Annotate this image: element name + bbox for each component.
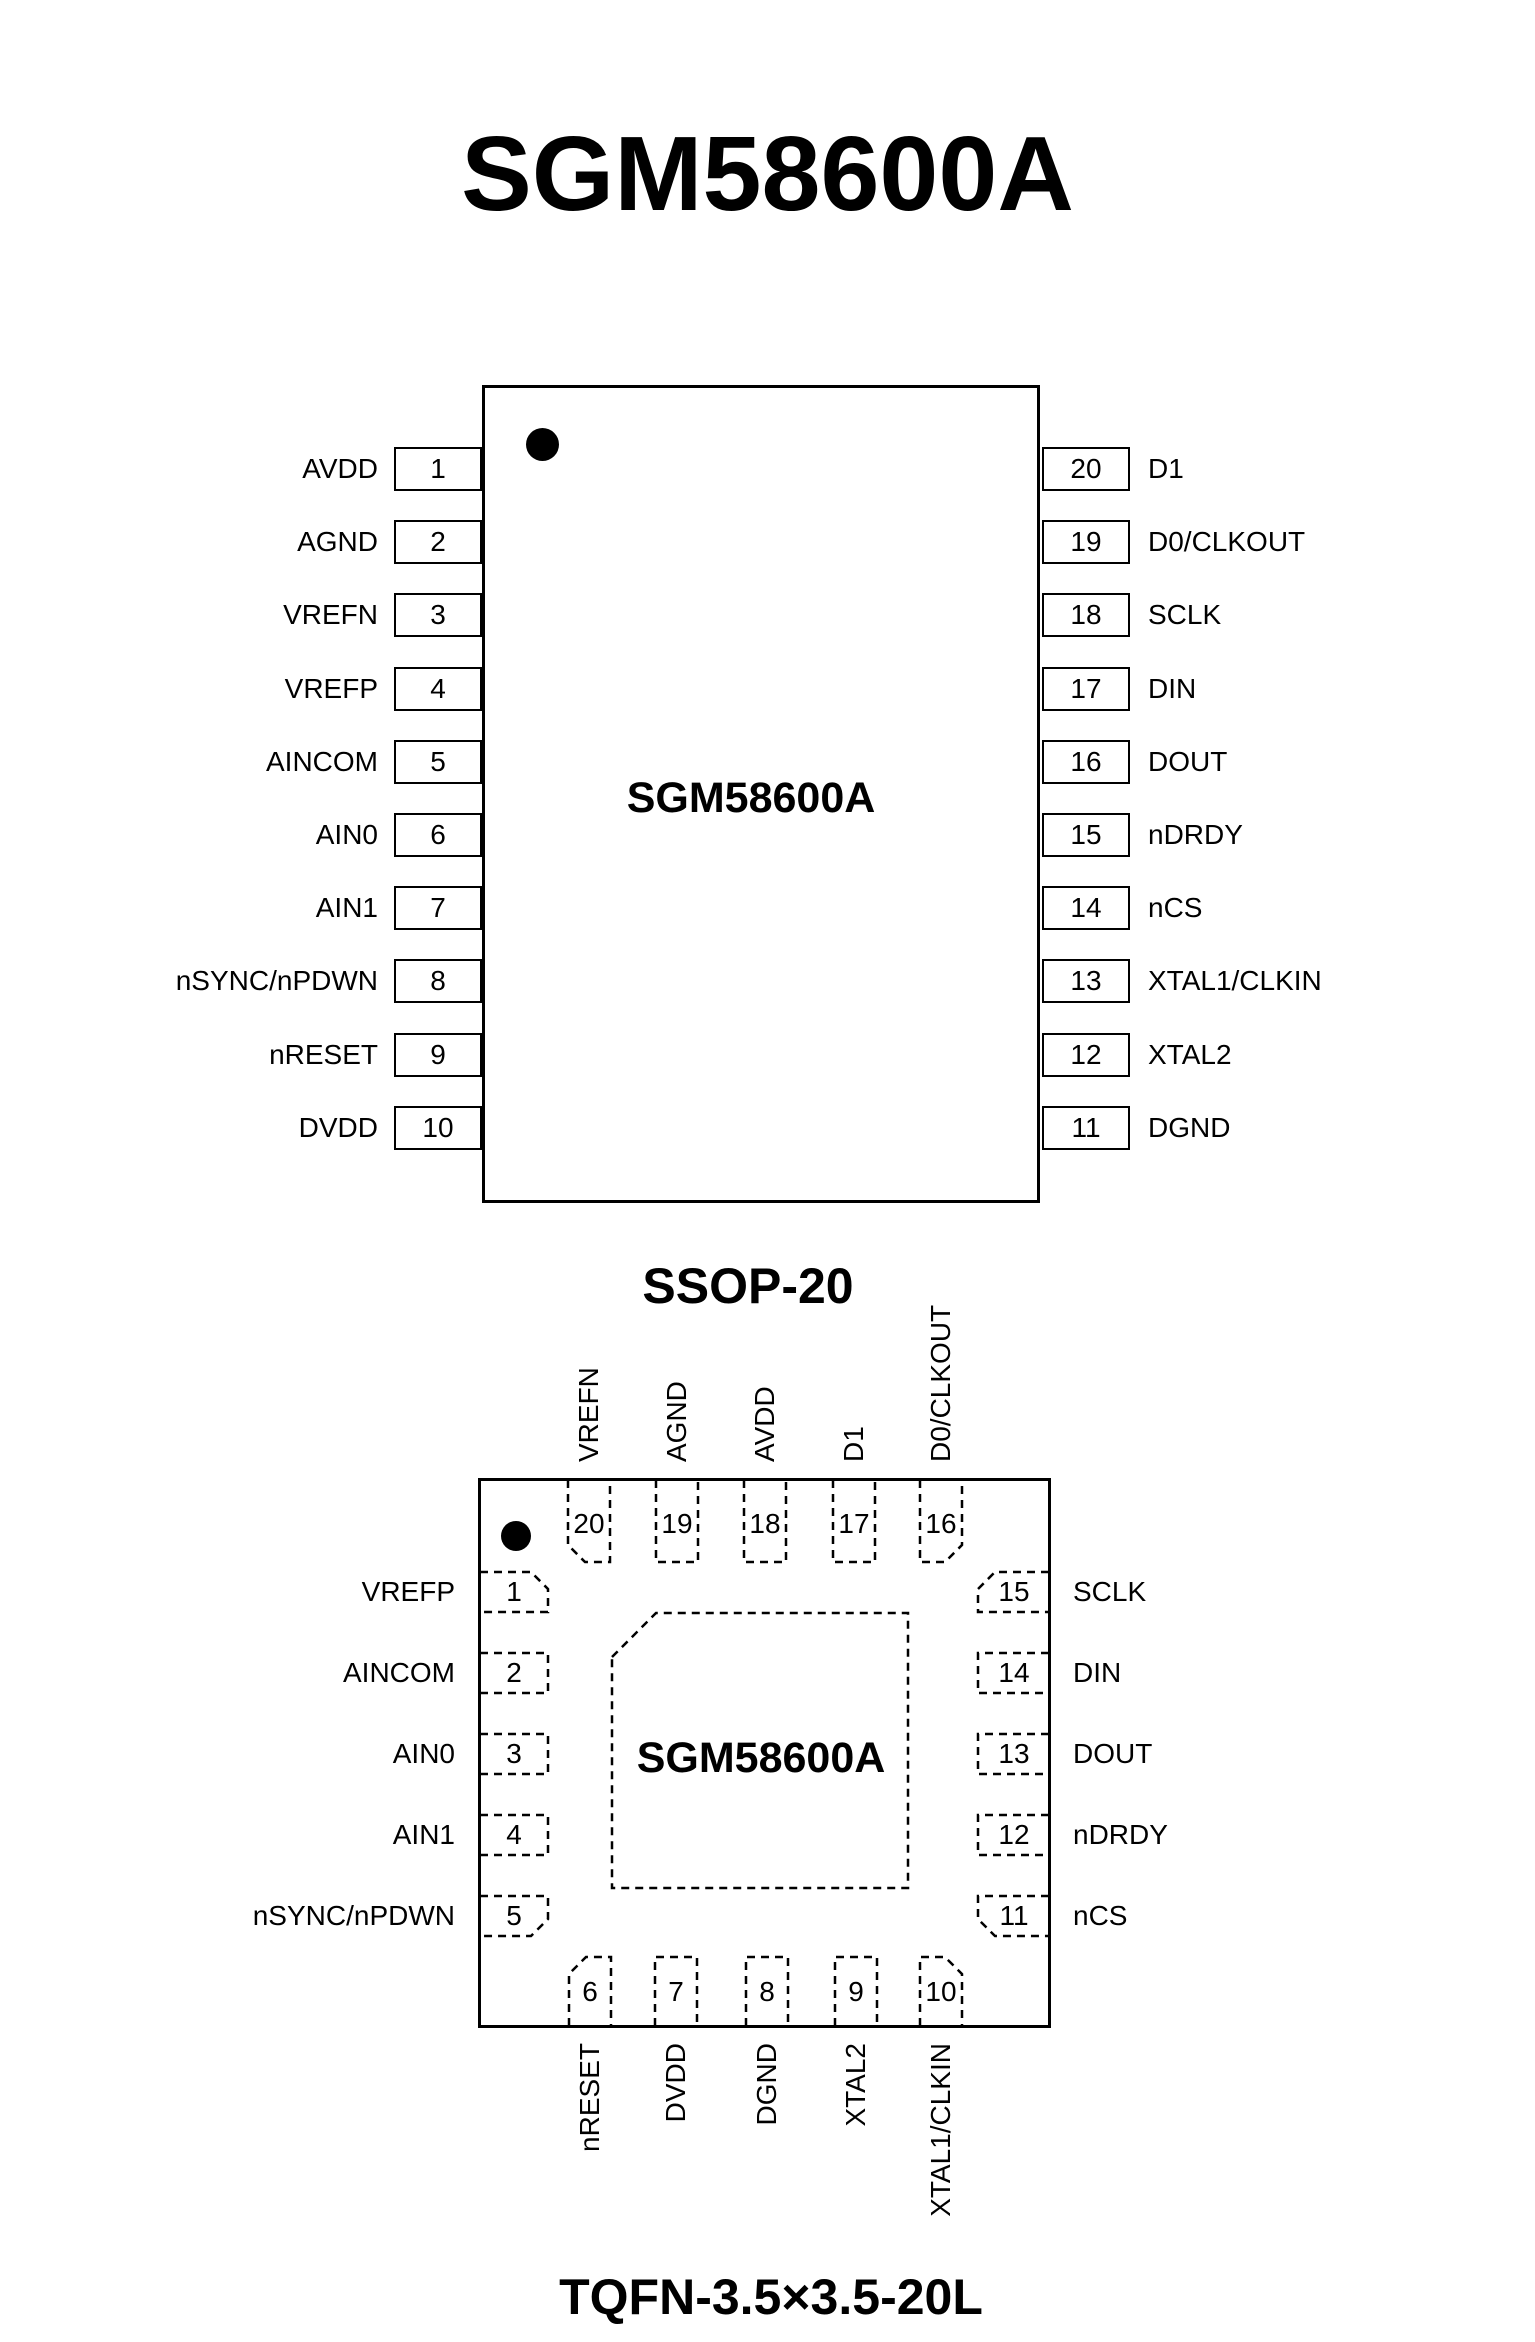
ssop-left-pin-label: DVDD [299,1112,378,1144]
tqfn-top-pin-label: AGND [661,1381,693,1462]
tqfn-right-pin-number: 15 [984,1576,1044,1608]
ssop-left-pin-label: VREFN [283,599,378,631]
ssop-right-pin-box: 19 [1042,520,1130,564]
ssop-left-pin-box: 3 [394,593,482,637]
tqfn-right-pin-number: 12 [984,1819,1044,1851]
tqfn-left-pin-label: AIN0 [393,1738,455,1770]
ssop-left-pin-label: AGND [297,526,378,558]
tqfn-bottom-pin-label: XTAL1/CLKIN [925,2043,957,2217]
ssop-left-pin-label: AIN0 [316,819,378,851]
tqfn-right-pin-label: DIN [1073,1657,1121,1689]
tqfn-right-pin-number: 14 [984,1657,1044,1689]
tqfn-pin1-dot-icon [501,1521,531,1551]
ssop-left-pin-box: 7 [394,886,482,930]
tqfn-left-pin-number: 3 [484,1738,544,1770]
tqfn-bottom-pin-label: DGND [751,2043,783,2125]
tqfn-bottom-pin-label: DVDD [660,2043,692,2122]
ssop-right-pin-label: DIN [1148,673,1196,705]
page-title: SGM58600A [0,121,1535,227]
ssop-right-pin-label: nCS [1148,892,1202,924]
ssop-left-pin-label: AIN1 [316,892,378,924]
ssop-left-pin-box: 6 [394,813,482,857]
tqfn-right-pin-label: DOUT [1073,1738,1152,1770]
ssop-right-pin-label: D0/CLKOUT [1148,526,1305,558]
tqfn-right-pin-number: 13 [984,1738,1044,1770]
ssop-right-pin-label: DGND [1148,1112,1230,1144]
tqfn-right-pin-number: 11 [984,1900,1044,1932]
tqfn-top-pin-number: 20 [559,1508,619,1540]
ssop-right-pin-label: D1 [1148,453,1184,485]
tqfn-left-pin-number: 1 [484,1576,544,1608]
tqfn-caption: TQFN-3.5×3.5-20L [559,2272,983,2322]
tqfn-bottom-pin-number: 6 [560,1976,620,2008]
ssop-left-pin-box: 8 [394,959,482,1003]
ssop-right-pin-box: 14 [1042,886,1130,930]
tqfn-top-pin-label: AVDD [749,1386,781,1462]
ssop-right-pin-box: 11 [1042,1106,1130,1150]
ssop-left-pin-label: nRESET [269,1039,378,1071]
ssop-right-pin-label: XTAL1/CLKIN [1148,965,1322,997]
tqfn-left-pin-number: 2 [484,1657,544,1689]
tqfn-top-pin-number: 16 [911,1508,971,1540]
tqfn-top-pin-label: D1 [838,1426,870,1462]
tqfn-bottom-pin-label: XTAL2 [840,2043,872,2127]
tqfn-right-pin-label: SCLK [1073,1576,1146,1608]
tqfn-bottom-pin-label: nRESET [574,2043,606,2152]
ssop-right-pin-box: 17 [1042,667,1130,711]
datasheet-page: { "title": "SGM58600A", "ssop": { "chip_… [0,0,1535,2342]
ssop-right-pin-box: 20 [1042,447,1130,491]
ssop-left-pin-box: 10 [394,1106,482,1150]
tqfn-left-pin-number: 4 [484,1819,544,1851]
tqfn-left-pin-label: AINCOM [343,1657,455,1689]
ssop-left-pin-box: 9 [394,1033,482,1077]
tqfn-top-pin-label: D0/CLKOUT [925,1305,957,1462]
ssop-right-pin-box: 15 [1042,813,1130,857]
ssop-left-pin-label: AINCOM [266,746,378,778]
tqfn-left-pin-label: AIN1 [393,1819,455,1851]
ssop-right-pin-box: 16 [1042,740,1130,784]
ssop-left-pin-label: AVDD [302,453,378,485]
tqfn-right-pin-label: nDRDY [1073,1819,1168,1851]
ssop-right-pin-box: 18 [1042,593,1130,637]
ssop-left-pin-box: 1 [394,447,482,491]
tqfn-bottom-pin-number: 8 [737,1976,797,2008]
ssop-left-pin-box: 2 [394,520,482,564]
ssop-right-pin-box: 13 [1042,959,1130,1003]
ssop-right-pin-label: DOUT [1148,746,1227,778]
ssop-left-pin-box: 5 [394,740,482,784]
tqfn-top-pin-number: 18 [735,1508,795,1540]
tqfn-bottom-pin-number: 9 [826,1976,886,2008]
ssop-left-pin-label: nSYNC/nPDWN [176,965,378,997]
ssop-right-pin-label: XTAL2 [1148,1039,1232,1071]
ssop-caption: SSOP-20 [642,1261,853,1311]
tqfn-left-pin-label: nSYNC/nPDWN [253,1900,455,1932]
ssop-chip-label: SGM58600A [627,777,876,820]
ssop-pin1-dot-icon [526,428,559,461]
tqfn-right-pin-label: nCS [1073,1900,1127,1932]
tqfn-left-pin-label: VREFP [362,1576,455,1608]
tqfn-top-pin-label: VREFN [573,1367,605,1462]
ssop-right-pin-label: SCLK [1148,599,1221,631]
tqfn-bottom-pin-number: 10 [911,1976,971,2008]
tqfn-top-pin-number: 17 [824,1508,884,1540]
tqfn-bottom-pin-number: 7 [646,1976,706,2008]
tqfn-left-pin-number: 5 [484,1900,544,1932]
tqfn-chip-label: SGM58600A [637,1737,886,1780]
ssop-left-pin-label: VREFP [285,673,378,705]
tqfn-top-pin-number: 19 [647,1508,707,1540]
ssop-left-pin-box: 4 [394,667,482,711]
ssop-right-pin-box: 12 [1042,1033,1130,1077]
ssop-right-pin-label: nDRDY [1148,819,1243,851]
